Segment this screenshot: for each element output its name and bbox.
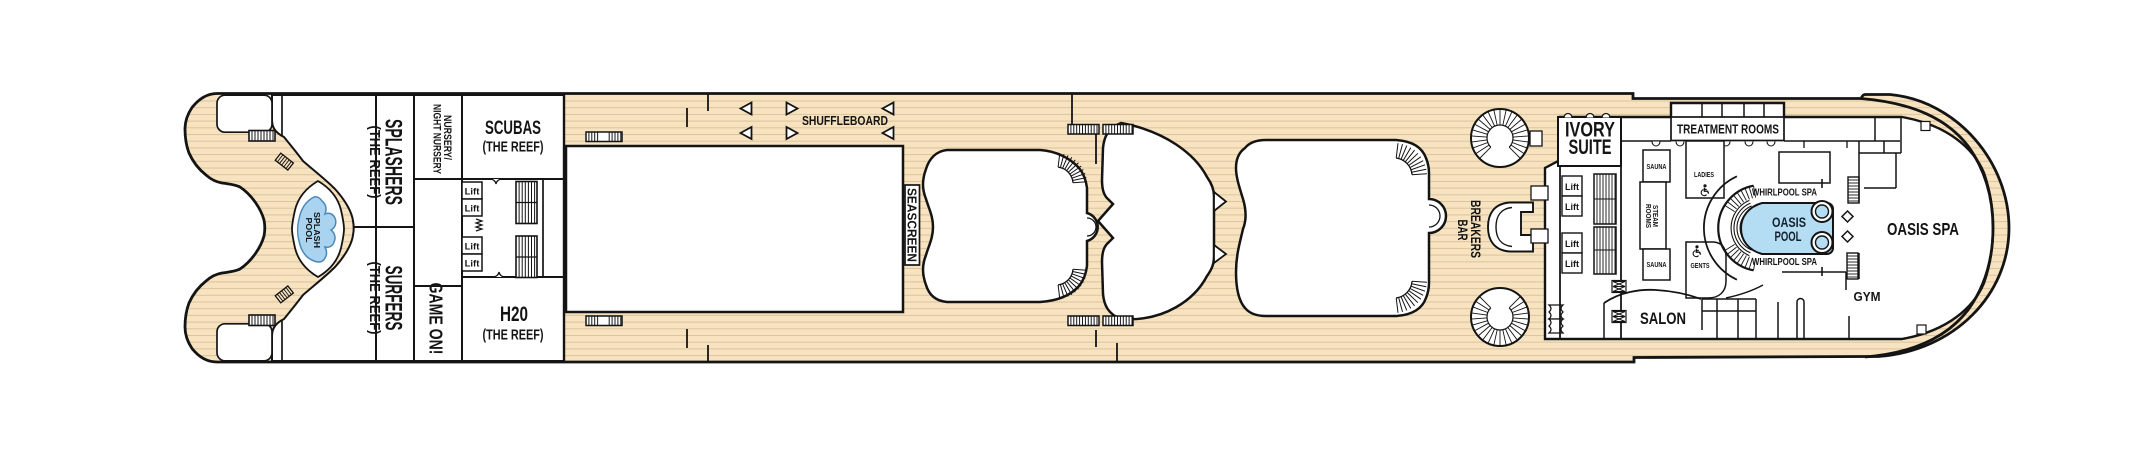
svg-text:SALON: SALON bbox=[1640, 310, 1686, 328]
svg-text:Lift: Lift bbox=[1565, 182, 1579, 192]
svg-text:SCUBAS: SCUBAS bbox=[485, 117, 541, 139]
svg-text:ROOMS: ROOMS bbox=[1644, 204, 1653, 228]
svg-text:TREATMENT ROOMS: TREATMENT ROOMS bbox=[1677, 122, 1779, 137]
svg-text:OASIS: OASIS bbox=[1772, 215, 1806, 230]
svg-text:Lift: Lift bbox=[465, 204, 481, 215]
svg-text:(THE REEF): (THE REEF) bbox=[483, 140, 544, 156]
svg-text:(THE REEF): (THE REEF) bbox=[366, 262, 383, 335]
svg-text:(THE REEF): (THE REEF) bbox=[366, 126, 383, 199]
svg-text:Lift: Lift bbox=[1565, 202, 1579, 212]
svg-text:GENTS: GENTS bbox=[1691, 261, 1710, 270]
svg-text:SAUNA: SAUNA bbox=[1647, 262, 1667, 269]
svg-text:Lift: Lift bbox=[1565, 239, 1579, 249]
svg-text:OASIS SPA: OASIS SPA bbox=[1887, 219, 1959, 239]
svg-text:GAME ON!: GAME ON! bbox=[426, 283, 446, 355]
svg-text:BAR: BAR bbox=[1455, 220, 1471, 241]
svg-text:WHIRLPOOL SPA: WHIRLPOOL SPA bbox=[1752, 188, 1817, 199]
svg-text:SAUNA: SAUNA bbox=[1647, 164, 1667, 171]
svg-text:GYM: GYM bbox=[1854, 289, 1881, 304]
svg-text:Lift: Lift bbox=[465, 242, 481, 253]
svg-text:WHIRLPOOL SPA: WHIRLPOOL SPA bbox=[1752, 257, 1817, 268]
svg-text:SUITE: SUITE bbox=[1569, 135, 1612, 159]
svg-text:POOL: POOL bbox=[304, 218, 313, 243]
svg-text:SEASCREEN: SEASCREEN bbox=[905, 188, 920, 262]
svg-text:Lift: Lift bbox=[1565, 259, 1579, 269]
svg-text:(THE REEF): (THE REEF) bbox=[483, 328, 544, 344]
svg-text:H20: H20 bbox=[500, 303, 528, 326]
svg-text:Lift: Lift bbox=[465, 187, 481, 198]
svg-text:LADIES: LADIES bbox=[1694, 170, 1714, 179]
svg-text:POOL: POOL bbox=[1775, 229, 1802, 244]
svg-text:NIGHT NURSERY: NIGHT NURSERY bbox=[431, 104, 443, 175]
svg-text:SHUFFLEBOARD: SHUFFLEBOARD bbox=[802, 114, 888, 128]
svg-text:Lift: Lift bbox=[465, 259, 481, 270]
